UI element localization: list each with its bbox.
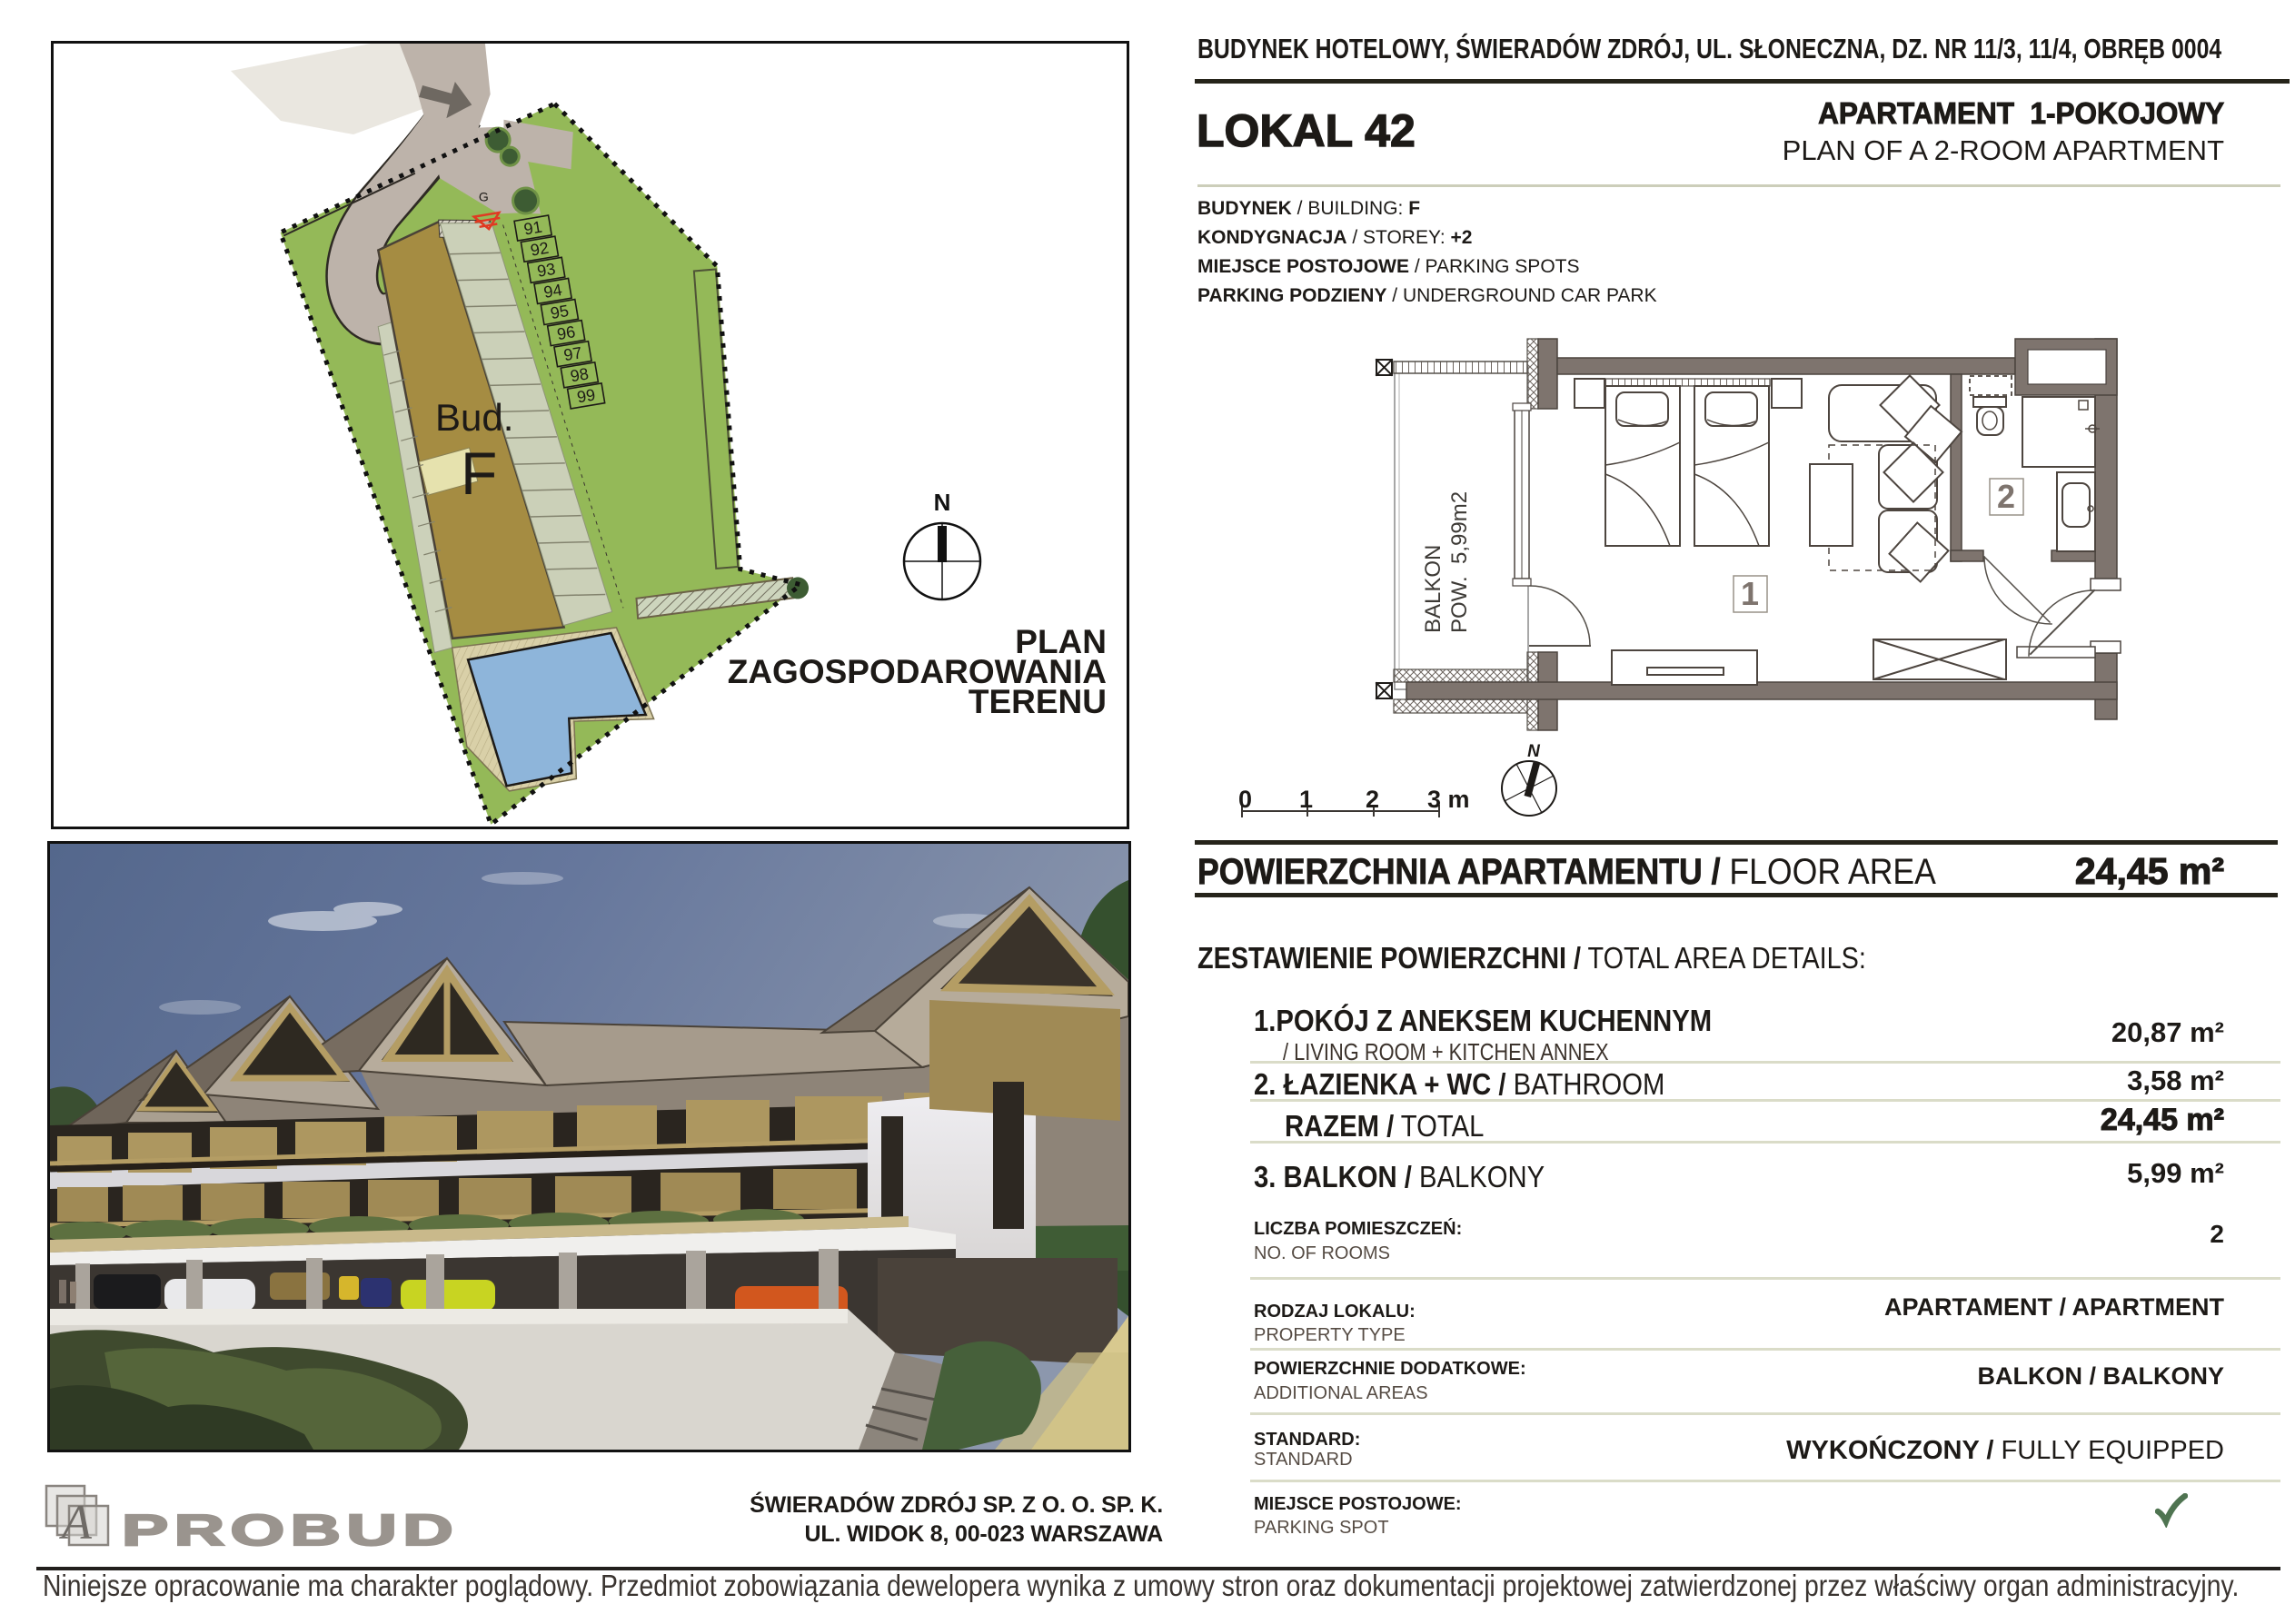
svg-text:97: 97 xyxy=(562,343,583,364)
svg-text:99: 99 xyxy=(576,385,597,406)
svg-text:93: 93 xyxy=(536,260,557,281)
svg-text:2: 2 xyxy=(1366,786,1379,813)
svg-text:3 m: 3 m xyxy=(1427,786,1470,813)
svg-text:98: 98 xyxy=(569,364,590,385)
svg-text:Bud.: Bud. xyxy=(435,396,513,439)
svg-text:N: N xyxy=(934,489,951,516)
svg-text:1: 1 xyxy=(1299,786,1313,813)
svg-text:A: A xyxy=(59,1495,93,1550)
svg-text:94: 94 xyxy=(542,281,563,302)
svg-text:1: 1 xyxy=(1741,575,1759,612)
svg-text:2: 2 xyxy=(1997,478,2015,515)
svg-text:96: 96 xyxy=(556,322,577,343)
svg-text:POW. 5,99m2: POW. 5,99m2 xyxy=(1447,491,1472,633)
svg-text:0: 0 xyxy=(1238,786,1252,813)
svg-text:92: 92 xyxy=(529,239,550,260)
svg-text:TERENU: TERENU xyxy=(969,683,1107,720)
svg-text:91: 91 xyxy=(522,218,543,239)
svg-text:PROBUD: PROBUD xyxy=(122,1506,459,1555)
svg-text:BALKON: BALKON xyxy=(1421,545,1446,633)
svg-text:G: G xyxy=(479,190,489,204)
svg-text:95: 95 xyxy=(549,302,570,322)
svg-text:F: F xyxy=(461,440,497,507)
svg-text:N: N xyxy=(1527,742,1541,761)
